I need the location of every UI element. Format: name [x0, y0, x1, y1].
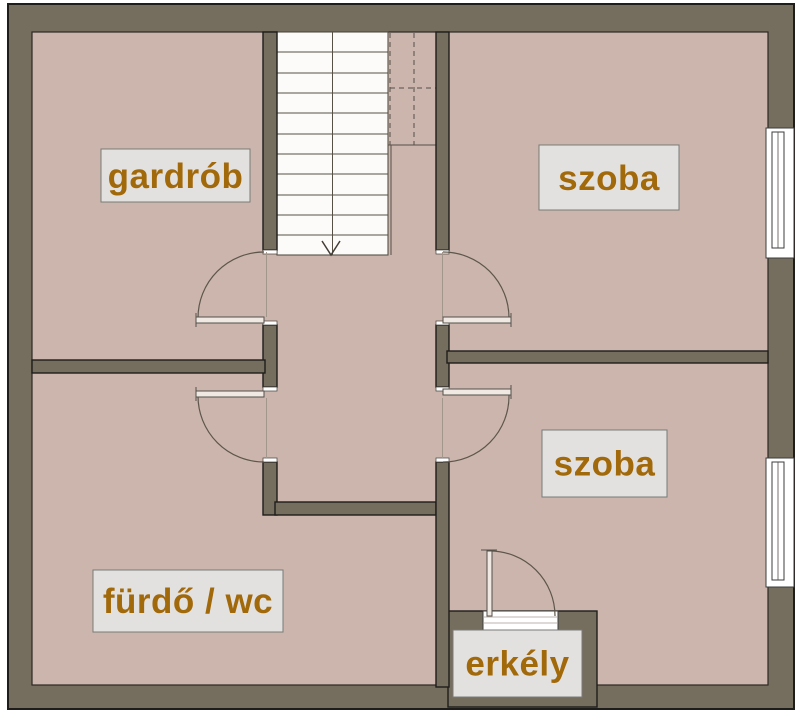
balcony-door-sill — [483, 611, 558, 630]
door-leaf — [487, 551, 492, 616]
floor-plan-drawing: gardrób szoba szoba fürdő / wc erkély — [0, 0, 800, 715]
wall-between-szobas — [447, 351, 768, 363]
room-label-furdo: fürdő / wc — [103, 582, 273, 621]
wall-hall-bottom — [275, 502, 436, 515]
wall-szoba-top-left — [436, 32, 449, 250]
door-leaf — [196, 317, 264, 323]
wall-left-stub — [263, 325, 277, 387]
window-bottom — [766, 458, 794, 587]
door-leaf — [443, 317, 511, 323]
room-label-szoba-top: szoba — [558, 159, 660, 198]
window-top — [766, 128, 794, 258]
wall-furdo-top — [32, 360, 265, 373]
wall-furdo-right — [436, 462, 449, 687]
wall-gardrob-right — [263, 32, 277, 250]
floor-plan: gardrób szoba szoba fürdő / wc erkély — [0, 0, 800, 715]
door-leaf — [443, 389, 511, 395]
room-label-erkely: erkély — [465, 645, 569, 684]
door-leaf — [196, 391, 264, 397]
room-label-gardrob: gardrób — [108, 157, 244, 196]
room-label-szoba-bottom: szoba — [554, 445, 656, 484]
